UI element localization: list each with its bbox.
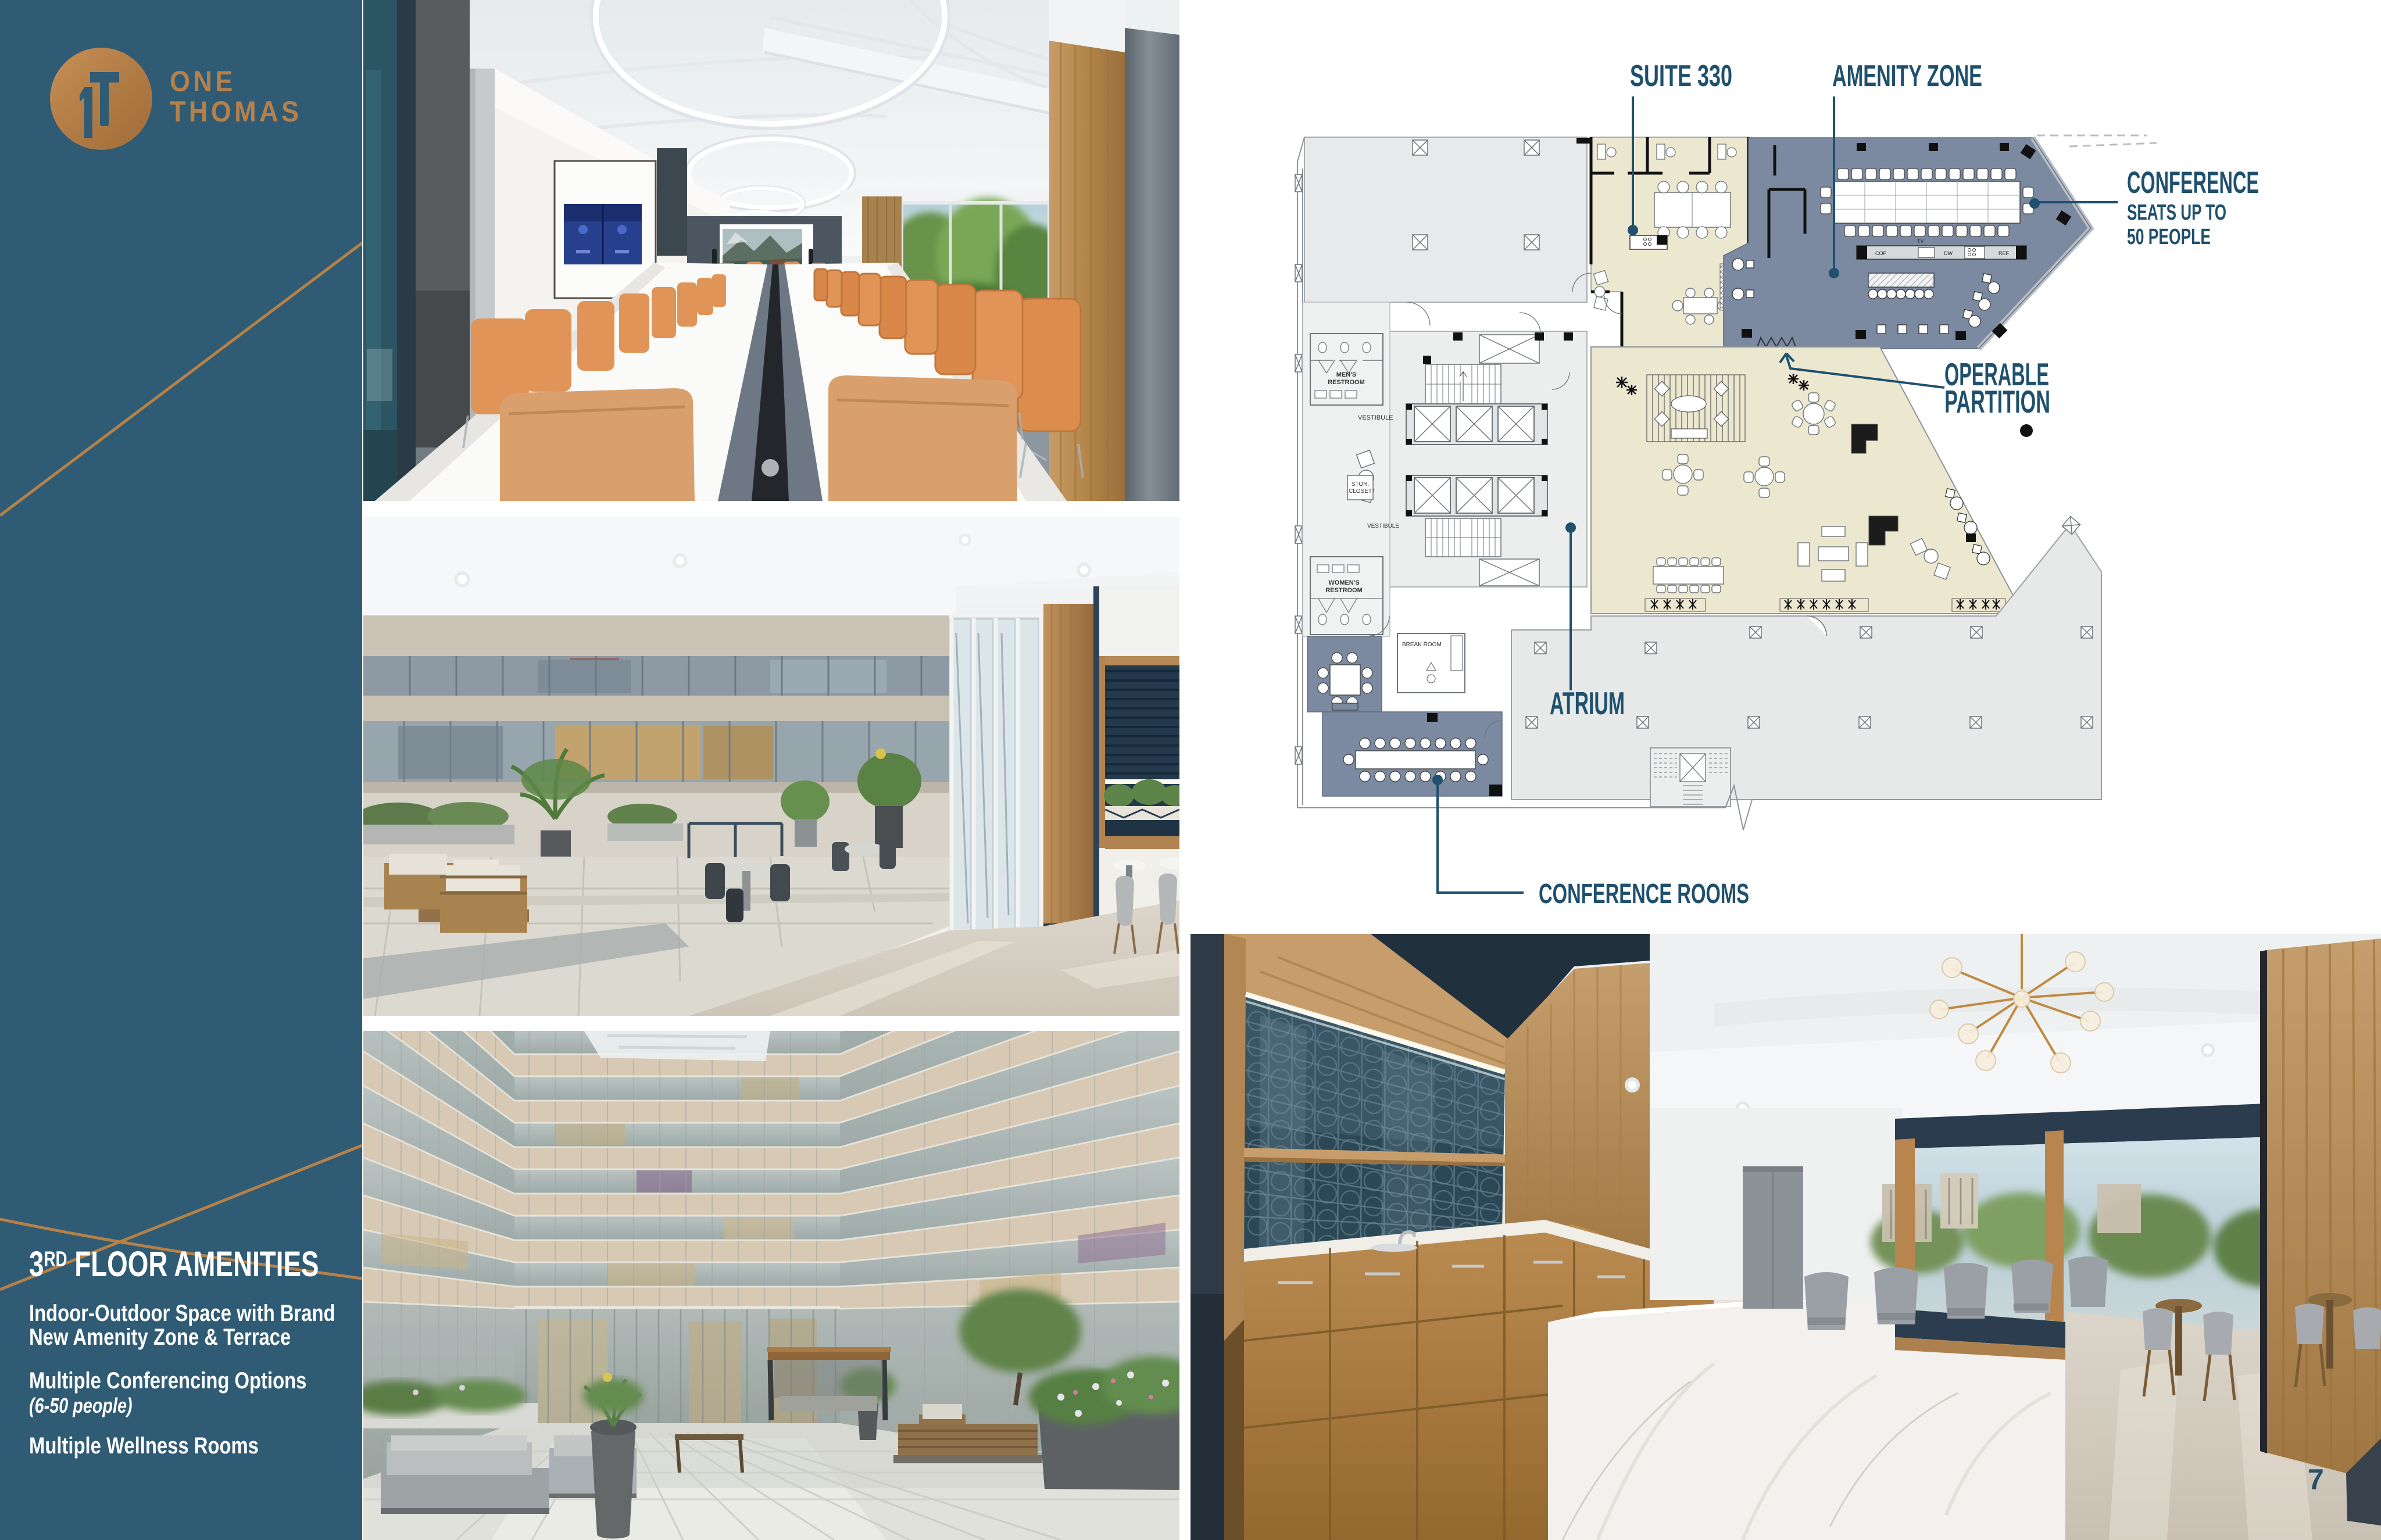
svg-text:AMENITY ZONE: AMENITY ZONE [1832, 59, 1982, 93]
svg-text:ATRIUM: ATRIUM [1550, 685, 1625, 721]
svg-text:MEN'S: MEN'S [1336, 371, 1356, 378]
svg-text:COF: COF [1875, 250, 1887, 256]
svg-text:WOMEN'S: WOMEN'S [1328, 579, 1359, 586]
svg-text:STOR.: STOR. [1352, 481, 1369, 488]
svg-text:CONFERENCE ROOMS: CONFERENCE ROOMS [1539, 879, 1749, 909]
svg-text:SEATS UP TO: SEATS UP TO [2127, 200, 2226, 225]
svg-text:SUITE 330: SUITE 330 [1630, 59, 1732, 93]
svg-text:CLOSET: CLOSET [1349, 488, 1372, 495]
svg-text:VESTIBULE: VESTIBULE [1358, 414, 1393, 421]
svg-text:VESTIBULE: VESTIBULE [1367, 523, 1399, 529]
svg-text:BREAK ROOM: BREAK ROOM [1402, 642, 1442, 648]
svg-text:DW: DW [1944, 250, 1953, 256]
svg-text:7: 7 [2308, 1463, 2324, 1496]
svg-text:50 PEOPLE: 50 PEOPLE [2127, 225, 2211, 249]
svg-text:PARTITION: PARTITION [1944, 384, 2050, 420]
svg-text:CONFERENCE: CONFERENCE [2127, 166, 2259, 200]
svg-text:RESTROOM: RESTROOM [1325, 587, 1363, 594]
svg-text:TV: TV [1917, 238, 1924, 244]
svg-text:RESTROOM: RESTROOM [1328, 379, 1365, 386]
svg-text:REF: REF [1999, 250, 2010, 256]
